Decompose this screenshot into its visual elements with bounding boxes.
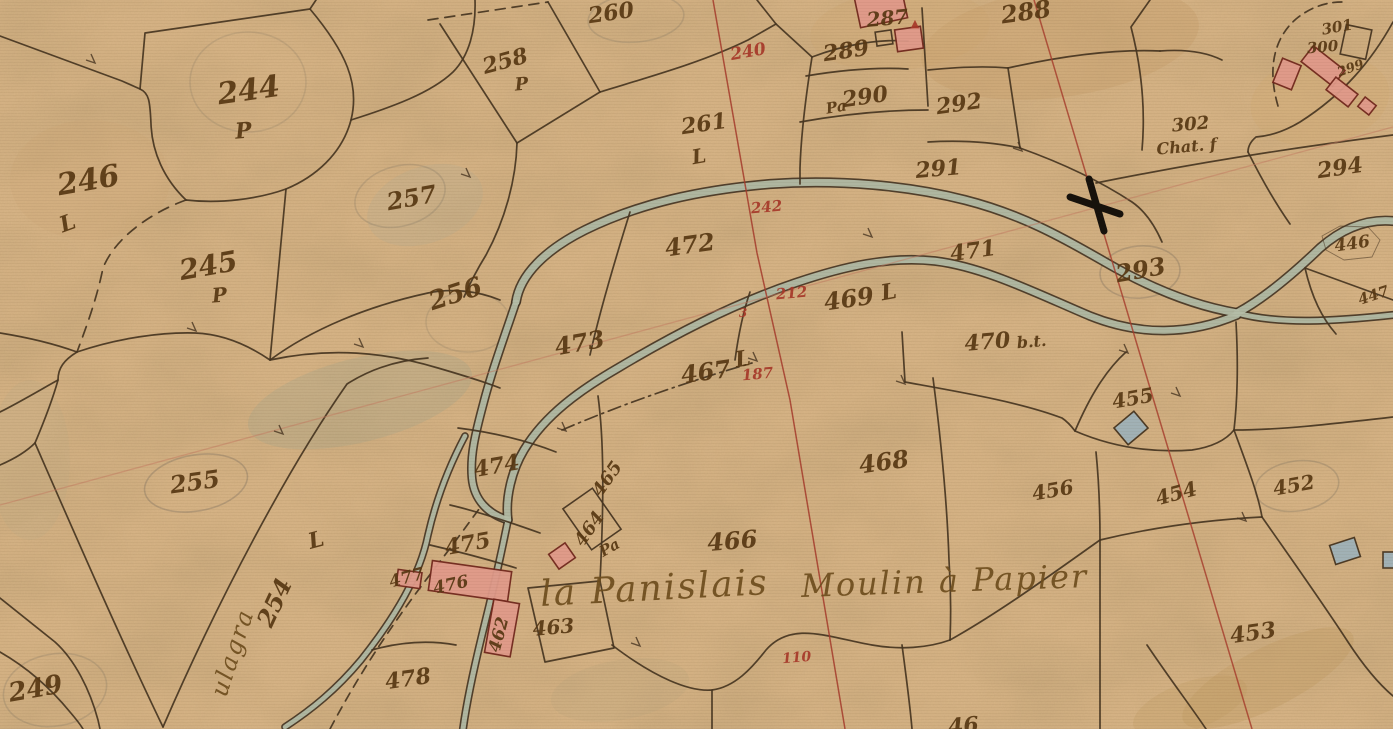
map-label-463: 463 — [532, 613, 576, 641]
map-label-110: 110 — [781, 649, 812, 668]
map-label--: ▲ — [911, 17, 920, 30]
map-label-291: 291 — [913, 154, 962, 184]
map-label-3: 3 — [739, 306, 747, 320]
map-label-46: 46 — [947, 712, 980, 729]
map-label-242: 242 — [749, 197, 783, 218]
map-label-212: 212 — [774, 283, 808, 304]
map-label-p: P — [210, 282, 229, 307]
map-label-470: 470 — [963, 327, 1012, 357]
cadastral-map-canvas: 244P246L245P257256258P260261L255254L2494… — [0, 0, 1393, 729]
map-label-187: 187 — [741, 364, 774, 385]
map-label-302: 302 — [1171, 112, 1210, 136]
map-label-b-t-: b.t. — [1016, 331, 1047, 353]
building-masonry — [895, 26, 924, 51]
map-label-466: 466 — [706, 524, 759, 557]
map-label-287: 287 — [865, 4, 910, 32]
map-label-p: P — [513, 73, 530, 95]
map-label-300: 300 — [1306, 37, 1339, 58]
cadastral-map-page: 244P246L245P257256258P260261L255254L2494… — [0, 0, 1393, 729]
building-annex — [1383, 552, 1393, 568]
